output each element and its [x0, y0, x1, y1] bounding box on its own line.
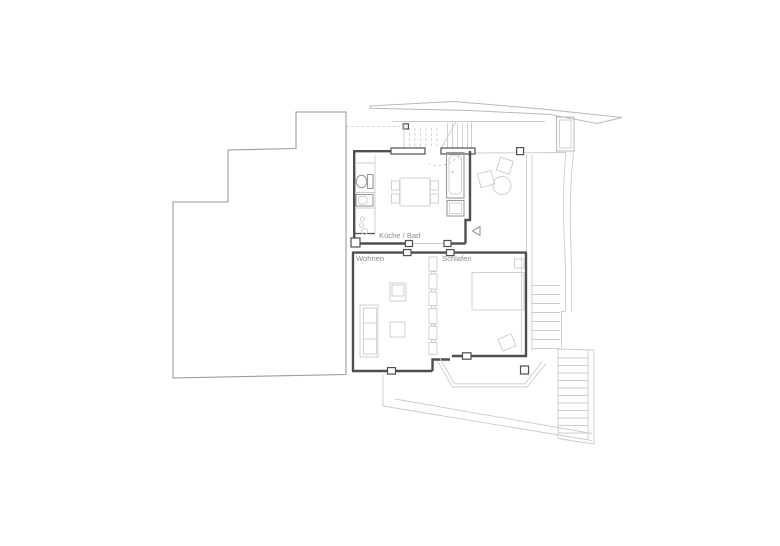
stair-treads — [532, 286, 560, 349]
bed — [472, 273, 524, 311]
coffee-table — [390, 322, 405, 337]
bedroom-chair — [498, 334, 516, 351]
neighbor-building-outline — [173, 112, 346, 378]
entry-arrow-icon — [473, 227, 481, 236]
post-marker-kitchen-corner — [351, 238, 360, 247]
living-bedroom-block: Wohnen Schlafen — [352, 250, 546, 387]
sink-cabinet-fixture — [447, 201, 464, 217]
garden-path — [558, 153, 594, 351]
dining-table-set — [392, 178, 439, 206]
entry-stair-top — [392, 122, 545, 150]
washbasin-fixture — [356, 195, 373, 207]
post-marker-bay — [521, 366, 529, 374]
living-room: Wohnen — [356, 254, 406, 357]
terrace — [473, 148, 567, 252]
ramp-path — [383, 375, 592, 441]
room-label-living: Wohnen — [356, 254, 384, 263]
armchair — [390, 283, 406, 301]
floor-plan-canvas: Küche / Bad — [0, 0, 780, 546]
stair-treads-solid — [448, 123, 468, 149]
post-marker-terrace — [517, 148, 524, 155]
room-partition — [429, 257, 437, 355]
door-swing-arc — [429, 156, 459, 166]
stair-break-line — [441, 122, 456, 149]
site-wall-top — [370, 102, 622, 124]
stair-treads-dashed — [410, 128, 438, 149]
bedroom: Schlafen — [442, 254, 524, 351]
terrace-chair — [496, 157, 513, 174]
bedside-stool — [515, 259, 525, 268]
stair-treads — [558, 358, 588, 433]
terrace-chair — [477, 170, 494, 187]
bathroom-zone — [355, 155, 375, 235]
room-label-kitchen-bath: Küche / Bad — [379, 231, 420, 240]
outdoor-stair-upper — [532, 155, 560, 351]
shower-fittings — [359, 217, 367, 235]
outdoor-stair-lower — [558, 349, 594, 444]
bay-window — [438, 359, 547, 388]
room-label-sleeping: Schlafen — [442, 254, 472, 263]
planter — [557, 117, 575, 151]
kitchen-bath-room: Küche / Bad — [351, 148, 475, 247]
bathtub-fixture — [447, 153, 465, 199]
sofa — [360, 305, 378, 357]
toilet-fixture — [356, 175, 373, 189]
terrace-table — [493, 177, 511, 195]
